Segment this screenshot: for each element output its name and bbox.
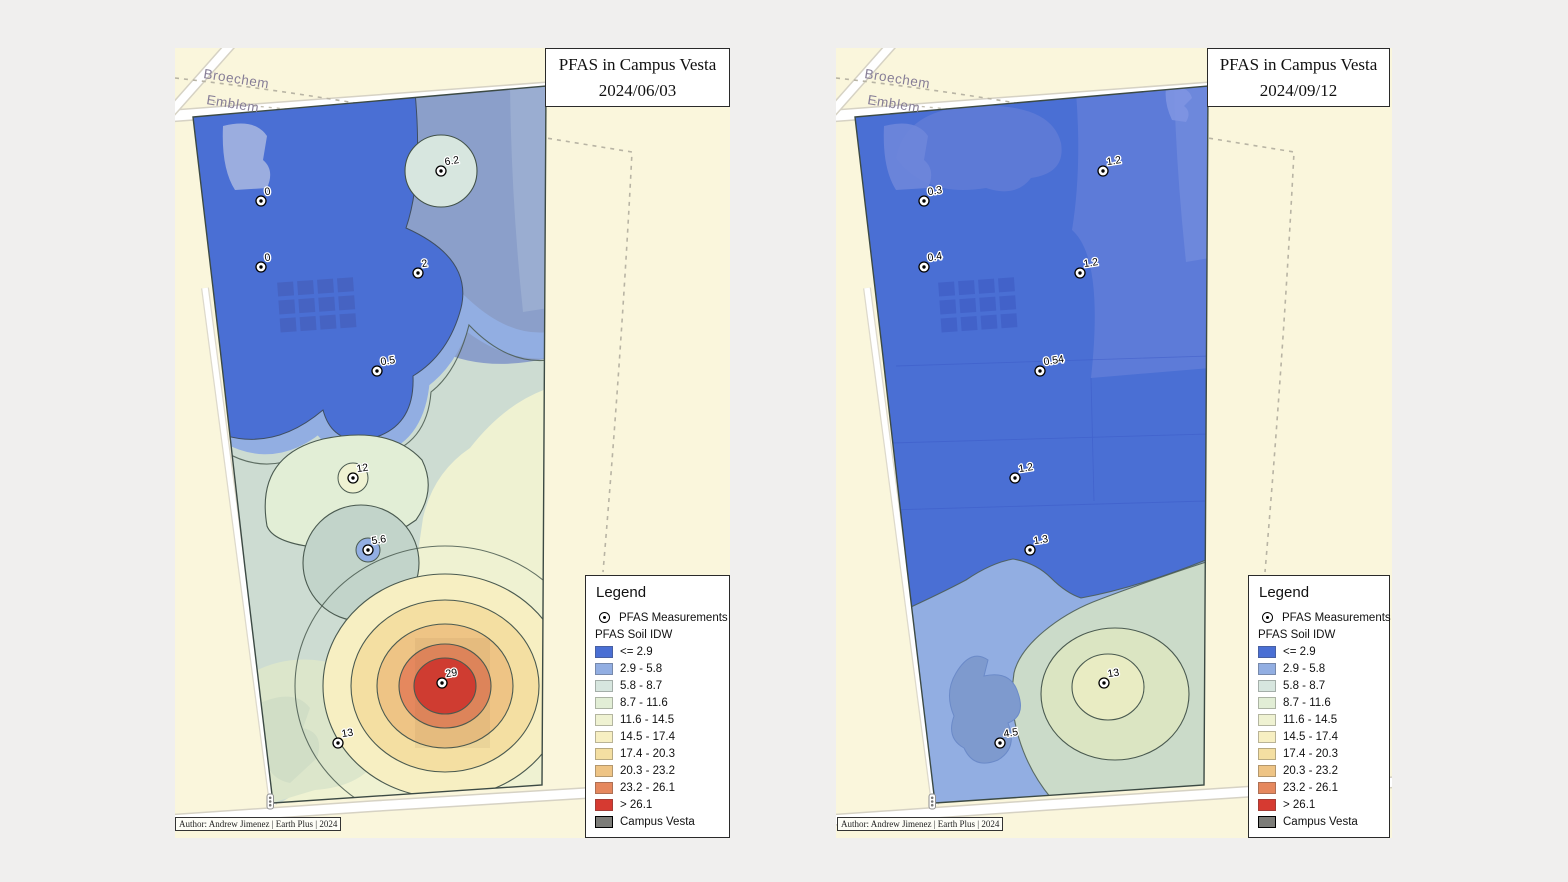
- class-label: 23.2 - 26.1: [1283, 782, 1338, 794]
- campus-swatch: [1258, 816, 1276, 828]
- class-swatch: [1258, 646, 1276, 658]
- point-label: 0.5: [380, 354, 396, 368]
- legend-june: Legend PFAS Measurements PFAS Soil IDW <…: [585, 575, 730, 838]
- point-label: 13: [1107, 667, 1121, 681]
- author-box: Author: Andrew Jimenez | Earth Plus | 20…: [837, 817, 1003, 831]
- point-label: 1.2: [1083, 256, 1099, 270]
- class-label: 2.9 - 5.8: [620, 663, 662, 675]
- class-swatch: [1258, 714, 1276, 726]
- class-label: 23.2 - 26.1: [620, 782, 675, 794]
- class-label: > 26.1: [620, 799, 652, 811]
- point-label: 12: [356, 462, 370, 476]
- class-swatch: [1258, 765, 1276, 777]
- class-label: 11.6 - 14.5: [1283, 714, 1337, 726]
- class-swatch: [595, 731, 613, 743]
- class-swatch: [595, 799, 613, 811]
- legend-measurements-label: PFAS Measurements: [619, 612, 728, 624]
- pfas-measurement-icon: [599, 612, 610, 623]
- class-swatch: [1258, 731, 1276, 743]
- map-panel-september: Broechem Emblem 0.3 1.2 0.4 1.2 0.54 1.2…: [836, 48, 1392, 838]
- class-swatch: [595, 646, 613, 658]
- legend-title: Legend: [1259, 584, 1380, 601]
- point-label: 6.2: [444, 154, 460, 168]
- map-title-text: PFAS in Campus Vesta: [1208, 52, 1389, 78]
- class-label: 14.5 - 17.4: [1283, 731, 1338, 743]
- class-swatch: [1258, 663, 1276, 675]
- legend-measurements-label: PFAS Measurements: [1282, 612, 1391, 624]
- gate-icon: [929, 794, 936, 809]
- class-swatch: [595, 663, 613, 675]
- class-label: 8.7 - 11.6: [1283, 697, 1331, 709]
- gate-icon: [267, 794, 274, 809]
- point-label: 5.6: [371, 533, 387, 547]
- point-label: 4.5: [1003, 726, 1019, 740]
- point-label: 1.3: [1033, 533, 1049, 547]
- map-title-date: 2024/06/03: [546, 78, 729, 104]
- point-label: 1.2: [1018, 461, 1034, 475]
- class-label: 20.3 - 23.2: [1283, 765, 1338, 777]
- page: Broechem Emblem 0 6.2 0 2 0.5 12 5.6 29 …: [0, 0, 1568, 882]
- class-label: 5.8 - 8.7: [620, 680, 662, 692]
- class-swatch: [595, 714, 613, 726]
- class-swatch: [595, 748, 613, 760]
- class-swatch: [595, 782, 613, 794]
- campus-label: Campus Vesta: [1283, 816, 1358, 828]
- class-label: <= 2.9: [1283, 646, 1316, 658]
- class-label: 5.8 - 8.7: [1283, 680, 1325, 692]
- class-label: 17.4 - 20.3: [1283, 748, 1338, 760]
- class-label: 2.9 - 5.8: [1283, 663, 1325, 675]
- campus-swatch: [595, 816, 613, 828]
- pfas-measurement-icon: [1262, 612, 1273, 623]
- class-swatch: [1258, 697, 1276, 709]
- class-label: 8.7 - 11.6: [620, 697, 668, 709]
- class-label: <= 2.9: [620, 646, 653, 658]
- class-swatch: [1258, 799, 1276, 811]
- point-label: 0.4: [927, 250, 943, 264]
- class-label: 14.5 - 17.4: [620, 731, 675, 743]
- legend-september: Legend PFAS Measurements PFAS Soil IDW <…: [1248, 575, 1390, 838]
- class-swatch: [595, 765, 613, 777]
- class-swatch: [1258, 782, 1276, 794]
- map-panel-june: Broechem Emblem 0 6.2 0 2 0.5 12 5.6 29 …: [175, 48, 730, 838]
- class-swatch: [595, 697, 613, 709]
- class-label: 20.3 - 23.2: [620, 765, 675, 777]
- campus-label: Campus Vesta: [620, 816, 695, 828]
- class-swatch: [1258, 748, 1276, 760]
- class-swatch: [595, 680, 613, 692]
- map-title-date: 2024/09/12: [1208, 78, 1389, 104]
- legend-idw-label: PFAS Soil IDW: [1258, 626, 1380, 643]
- point-label: 1.2: [1106, 154, 1122, 168]
- legend-title: Legend: [596, 584, 720, 601]
- class-label: 17.4 - 20.3: [620, 748, 675, 760]
- legend-idw-label: PFAS Soil IDW: [595, 626, 720, 643]
- class-label: 11.6 - 14.5: [620, 714, 674, 726]
- class-swatch: [1258, 680, 1276, 692]
- point-label: 29: [445, 667, 459, 681]
- map-title-september: PFAS in Campus Vesta 2024/09/12: [1207, 48, 1390, 107]
- map-title-text: PFAS in Campus Vesta: [546, 52, 729, 78]
- point-label: 13: [341, 727, 355, 741]
- point-label: 0.3: [927, 184, 943, 198]
- author-box: Author: Andrew Jimenez | Earth Plus | 20…: [175, 817, 341, 831]
- class-label: > 26.1: [1283, 799, 1315, 811]
- map-title-june: PFAS in Campus Vesta 2024/06/03: [545, 48, 730, 107]
